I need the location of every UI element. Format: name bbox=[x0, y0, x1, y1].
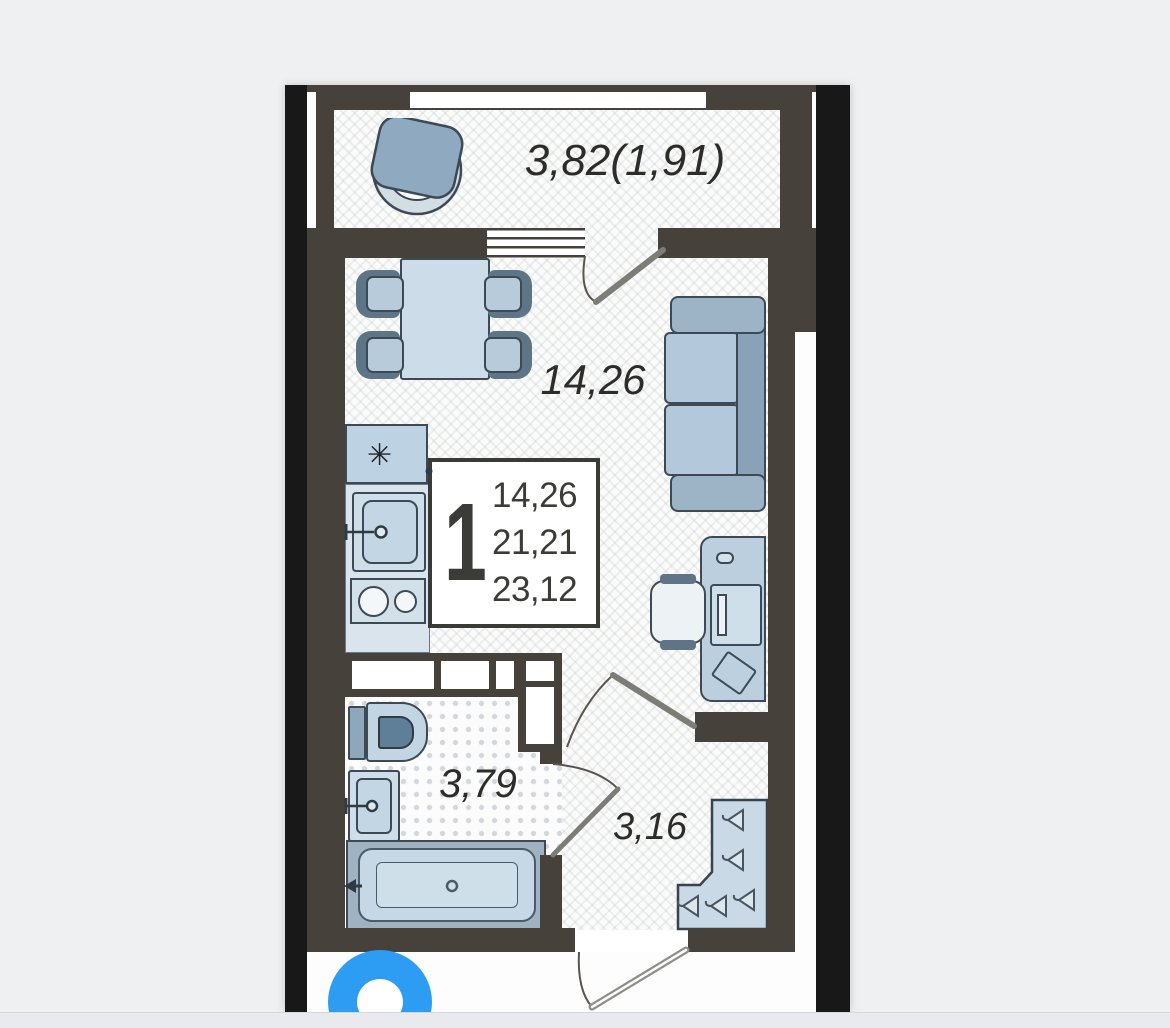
dining-chair bbox=[488, 270, 532, 318]
wall-segment bbox=[768, 258, 816, 332]
area-values: 14,26 21,21 23,12 bbox=[492, 472, 577, 613]
dining-table bbox=[400, 258, 490, 380]
room-count: 1 bbox=[444, 464, 487, 622]
duct-inset bbox=[526, 661, 554, 681]
toilet-seat bbox=[378, 716, 414, 749]
desk-chair-armrest bbox=[660, 640, 696, 650]
wall-segment bbox=[658, 228, 816, 258]
wall-segment bbox=[540, 855, 562, 928]
duct-inset bbox=[496, 661, 514, 689]
duct-inset bbox=[526, 687, 554, 744]
sofa-armrest bbox=[670, 296, 766, 334]
wall-segment bbox=[695, 712, 768, 742]
stove-burner-icon bbox=[394, 590, 417, 613]
dining-chair bbox=[356, 270, 400, 318]
desk-mouse bbox=[716, 552, 734, 564]
sofa-cushion bbox=[664, 404, 740, 476]
bathtub-basin bbox=[376, 862, 518, 908]
apartment-info-box: 1 14,26 21,21 23,12 bbox=[428, 458, 600, 628]
living-area-value: 14,26 bbox=[492, 472, 577, 519]
balcony-area-label: 3,82(1,91) bbox=[505, 136, 745, 186]
bathroom-sink-basin bbox=[356, 778, 392, 834]
wall-segment bbox=[307, 928, 575, 952]
duct-inset bbox=[441, 661, 489, 689]
stove-burner-icon bbox=[358, 586, 389, 617]
toilet-tank bbox=[348, 706, 366, 760]
wall-segment bbox=[768, 332, 795, 942]
kitchen-sink-basin bbox=[362, 500, 418, 564]
structural-bar-right bbox=[816, 85, 850, 1012]
wall-segment bbox=[316, 92, 334, 230]
wall-segment bbox=[780, 92, 812, 230]
balcony-glazing-window bbox=[410, 92, 706, 110]
dining-chair bbox=[488, 331, 532, 379]
sofa-cushion bbox=[664, 332, 740, 404]
balcony-door-window bbox=[487, 228, 585, 258]
monitor-screen bbox=[717, 594, 727, 636]
wall-segment bbox=[305, 228, 345, 952]
wall-segment bbox=[540, 752, 562, 764]
wall-segment bbox=[307, 85, 816, 92]
apartment-area-value: 21,21 bbox=[492, 519, 577, 566]
page-bottom-strip bbox=[0, 1012, 1170, 1028]
structural-bar-left bbox=[285, 85, 307, 1012]
snowflake-icon: ✳ bbox=[367, 438, 392, 473]
desk-chair-armrest bbox=[660, 574, 696, 584]
dining-chair bbox=[356, 331, 400, 379]
hallway-area-label: 3,16 bbox=[590, 806, 710, 849]
wall-segment bbox=[688, 928, 795, 952]
balcony-chair bbox=[362, 118, 472, 218]
duct-inset bbox=[352, 661, 434, 689]
fridge: ✳ bbox=[345, 424, 428, 484]
room-area-label: 14,26 bbox=[528, 356, 658, 404]
sofa-armrest bbox=[670, 474, 766, 512]
total-area-value: 23,12 bbox=[492, 566, 577, 613]
page-background: ✳ 3,82(1, bbox=[0, 0, 1170, 1028]
right-light-shaft bbox=[795, 332, 816, 1012]
bathroom-area-label: 3,79 bbox=[418, 762, 538, 807]
desk-chair bbox=[650, 580, 706, 644]
